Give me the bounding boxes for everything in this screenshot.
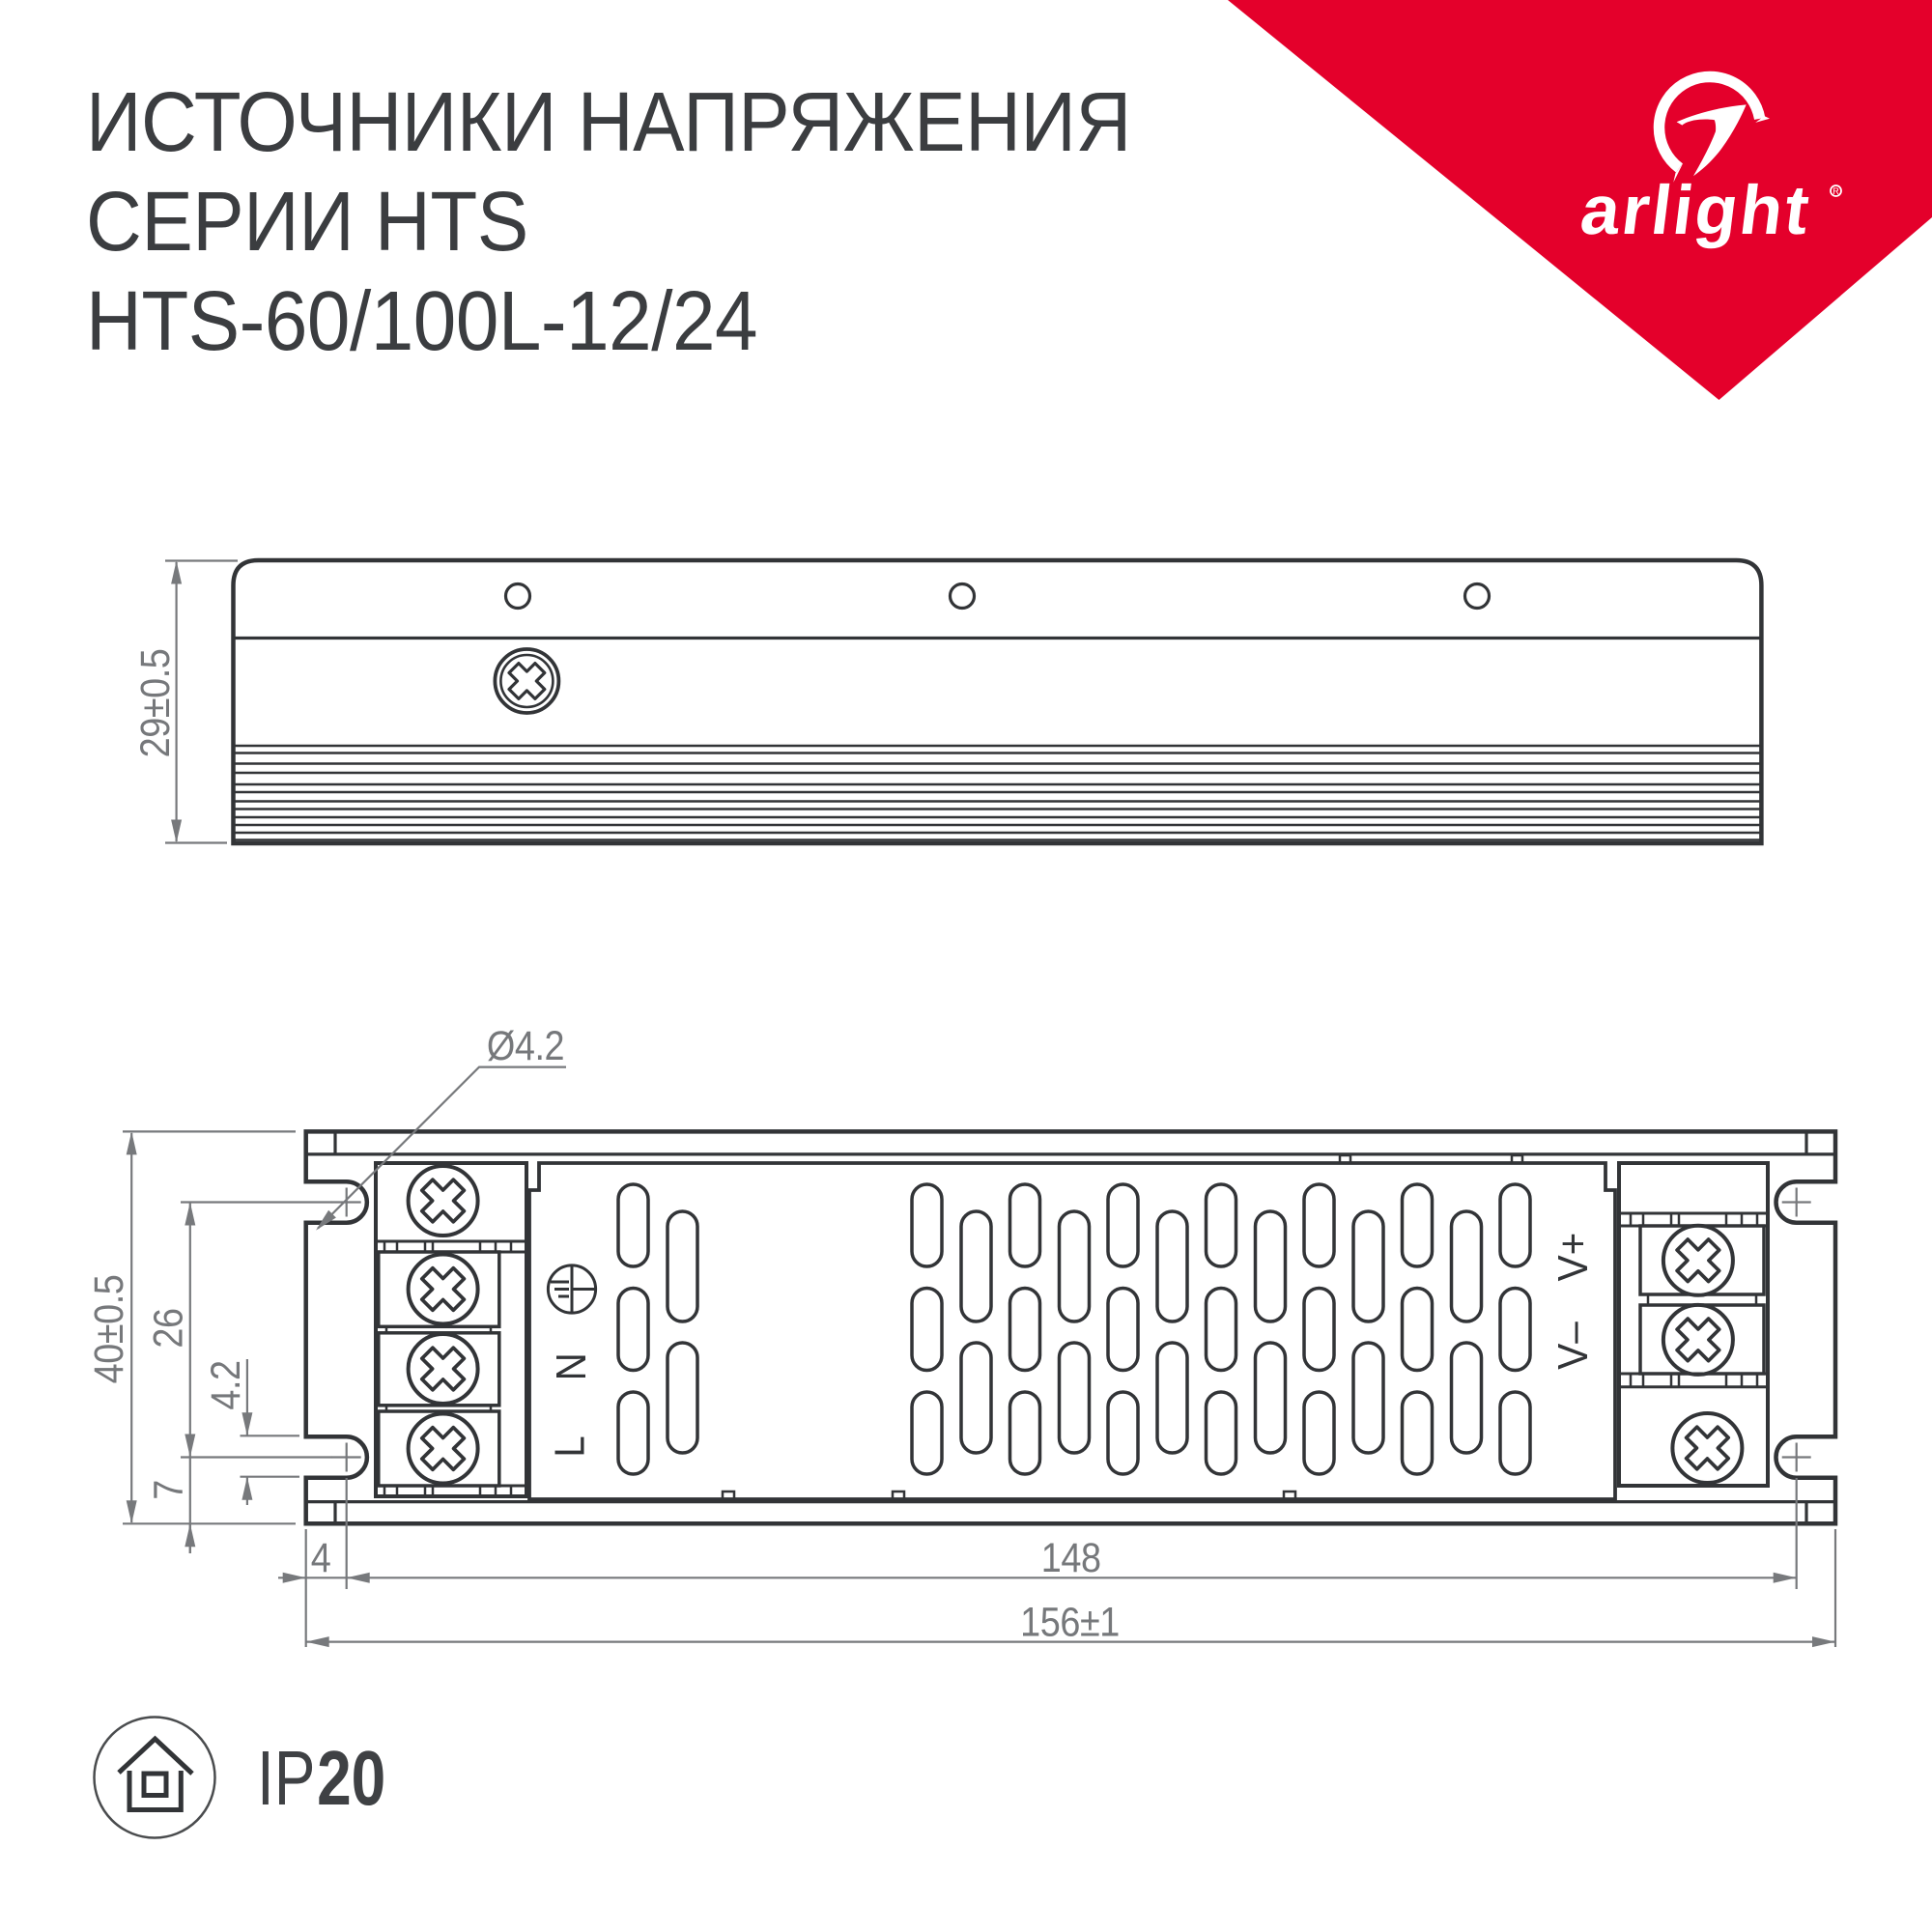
svg-text:R: R xyxy=(1833,186,1839,196)
svg-text:V+: V+ xyxy=(1548,1233,1596,1282)
svg-text:HTS-60/100L-12/24: HTS-60/100L-12/24 xyxy=(86,273,757,368)
svg-text:L: L xyxy=(546,1435,593,1458)
svg-text:4.2: 4.2 xyxy=(202,1360,249,1409)
svg-text:ИСТОЧНИКИ НАПРЯЖЕНИЯ: ИСТОЧНИКИ НАПРЯЖЕНИЯ xyxy=(86,74,1131,169)
svg-text:Ø4.2: Ø4.2 xyxy=(487,1022,564,1069)
svg-text:7: 7 xyxy=(144,1480,191,1500)
svg-text:40±0.5: 40±0.5 xyxy=(85,1275,132,1384)
svg-text:26: 26 xyxy=(144,1308,191,1348)
svg-text:N: N xyxy=(547,1352,594,1380)
svg-text:156±1: 156±1 xyxy=(1020,1598,1120,1645)
svg-text:148: 148 xyxy=(1041,1534,1101,1581)
svg-text:V–: V– xyxy=(1548,1321,1596,1370)
svg-text:IP20: IP20 xyxy=(257,1735,385,1821)
svg-text:29±0.5: 29±0.5 xyxy=(131,649,179,758)
svg-text:4: 4 xyxy=(311,1534,331,1581)
svg-text:arlight: arlight xyxy=(1577,172,1815,249)
svg-text:СЕРИИ HTS: СЕРИИ HTS xyxy=(86,174,528,269)
